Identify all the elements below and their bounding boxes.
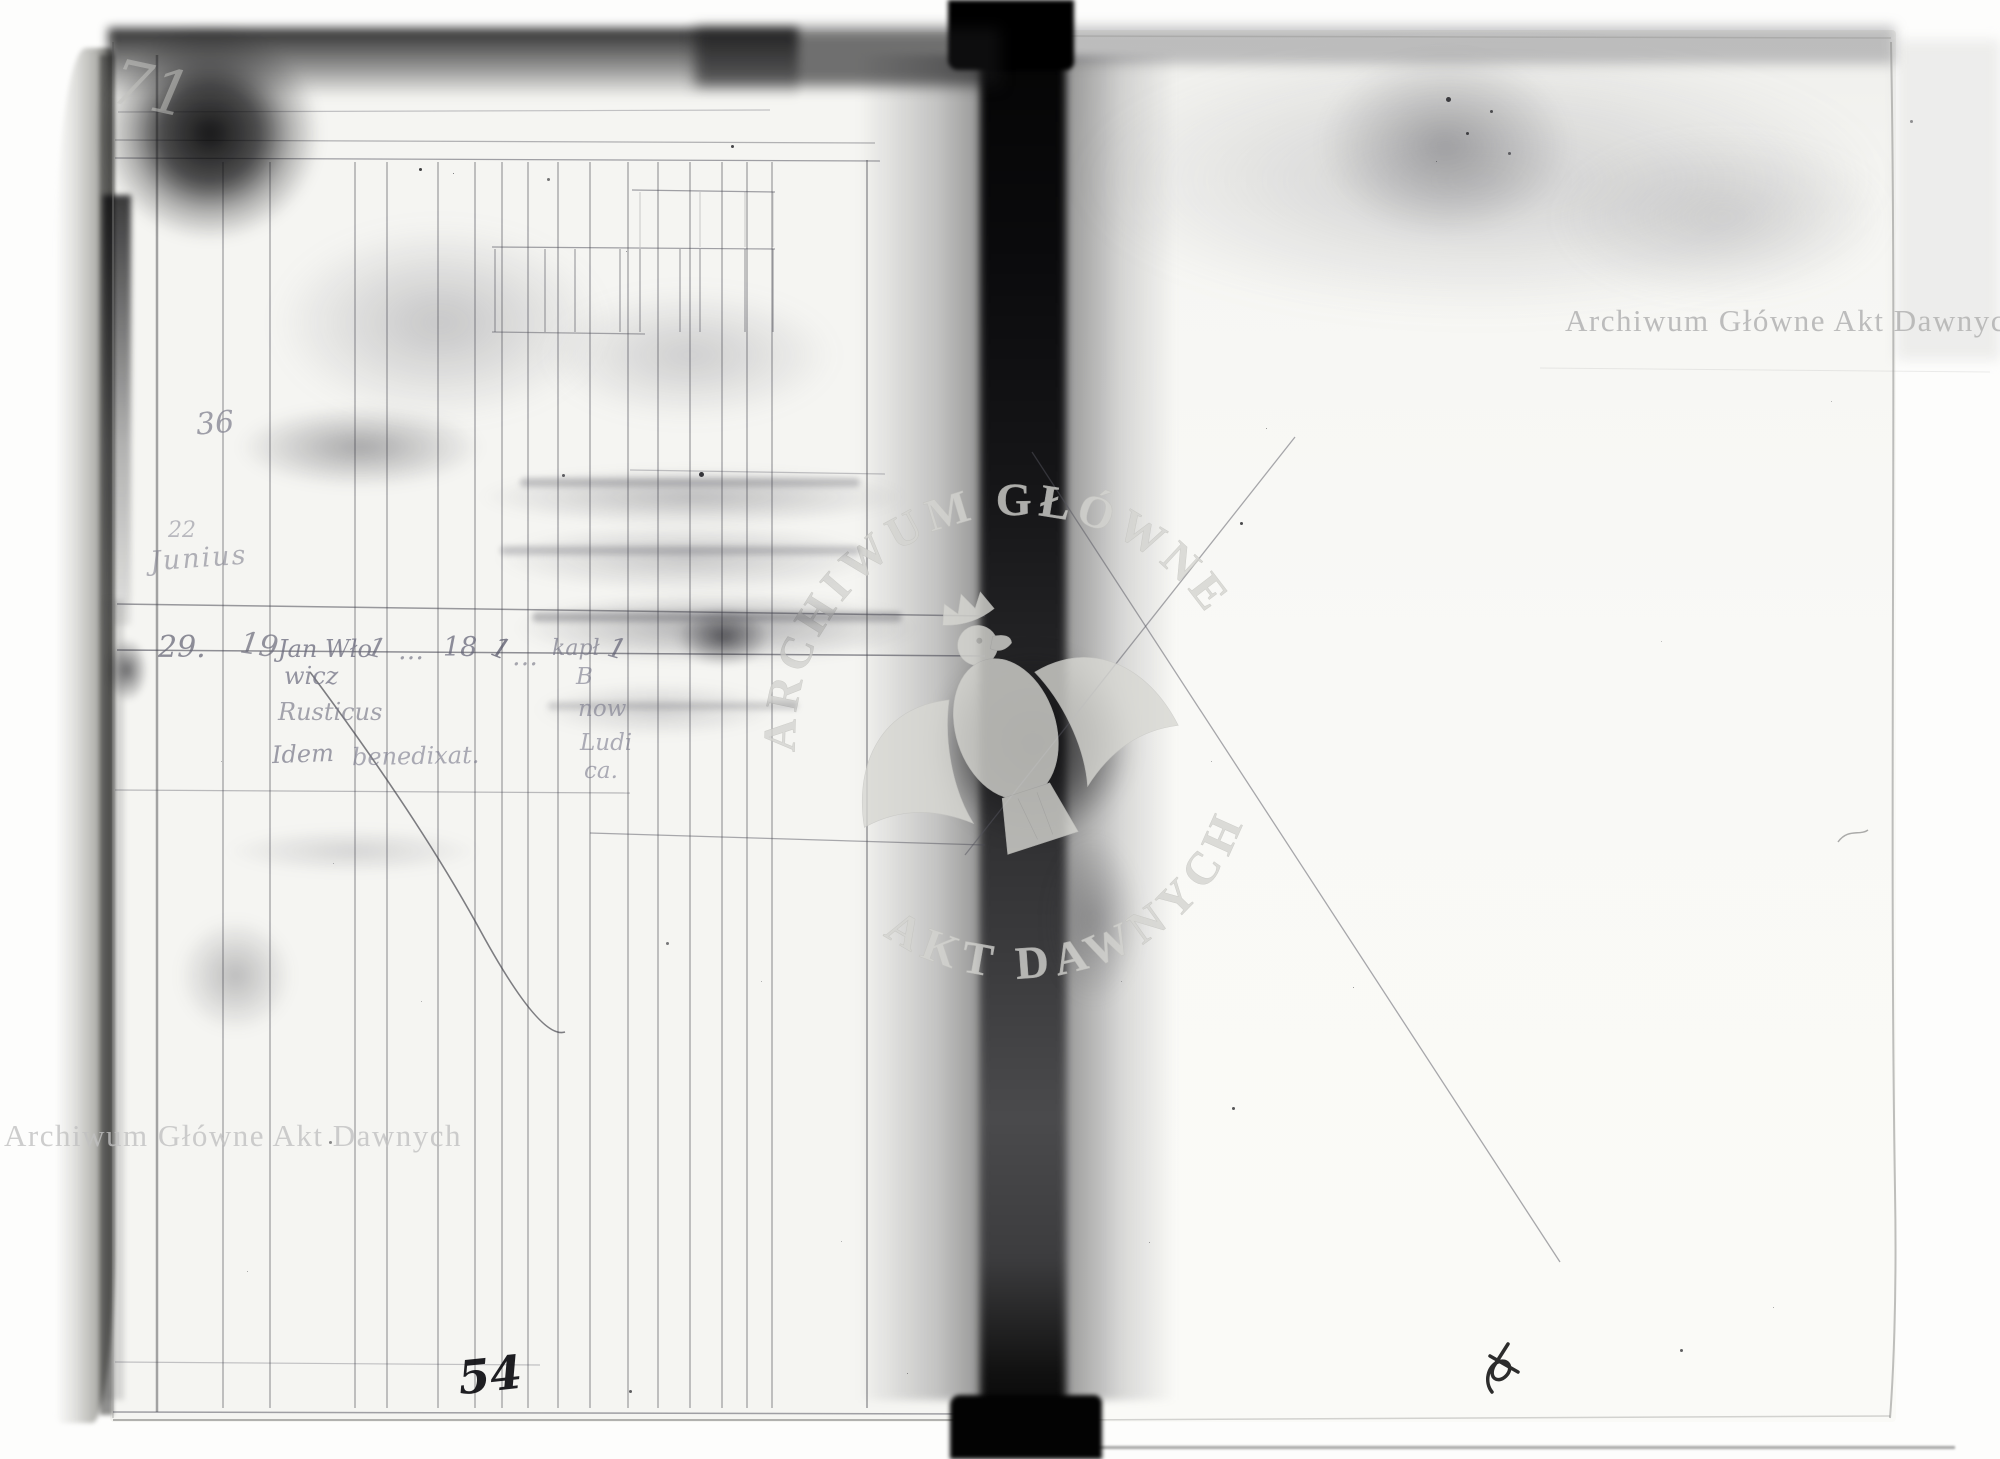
paper-ruling-faint (1540, 368, 1990, 372)
entry-cell-line-ludi: Ludi (580, 730, 632, 756)
seal-bottom-arc-text: AKT DAWNYCH (867, 789, 1286, 1039)
line-art-overlay: ARCHIWUM GŁÓWNE AKT DAWNYCH (0, 0, 2000, 1459)
entry-value-18: 18 (443, 632, 477, 663)
entry-note-word2: benedixat. (352, 741, 480, 771)
entry-dots-2: … (512, 642, 538, 672)
archive-seal-watermark: ARCHIWUM GŁÓWNE AKT DAWNYCH (693, 407, 1341, 1056)
ink-scribble-mark (1488, 1344, 1518, 1392)
table-header-sketch (495, 192, 773, 332)
entry-cell-line-now: now (578, 696, 626, 722)
archival-book-scan: ARCHIWUM GŁÓWNE AKT DAWNYCH 71 36 (0, 0, 2000, 1459)
margin-number-22: 22 (168, 518, 196, 543)
right-page-top-edge (1065, 36, 1891, 38)
entry-cell-kapl: kapł (552, 636, 600, 661)
entry-cell-line-b: B (576, 664, 593, 690)
right-page-bottom-edge (1065, 1416, 1890, 1420)
margin-number-36: 36 (195, 404, 236, 442)
entry-name-line1: Jan Wło (278, 635, 372, 663)
ink-specks (0, 0, 3, 3)
entry-name-line2: wicz (284, 662, 338, 690)
svg-text:AKT DAWNYCH: AKT DAWNYCH (867, 789, 1286, 1039)
entry-cell-line-ca: ca. (584, 758, 618, 784)
entry-name-line3: Rusticus (278, 698, 382, 726)
watermark-top-right: Archiwum Główne Akt Dawnych (1565, 303, 2000, 339)
scratch-right-page-2 (1032, 452, 1560, 1262)
squiggle-mark-right-edge (1838, 830, 1868, 842)
right-page-fore-edge (1890, 42, 1896, 1418)
watermark-bottom-left: Archiwum Główne Akt Dawnych (4, 1118, 462, 1154)
table-row-lines (113, 110, 985, 1414)
page-number-54: 54 (455, 1345, 524, 1405)
entry-number: 19 (238, 626, 281, 666)
entry-day: 29. (158, 630, 206, 665)
entry-note-word1: Idem (272, 739, 335, 769)
entry-dots-1: … (398, 636, 424, 666)
